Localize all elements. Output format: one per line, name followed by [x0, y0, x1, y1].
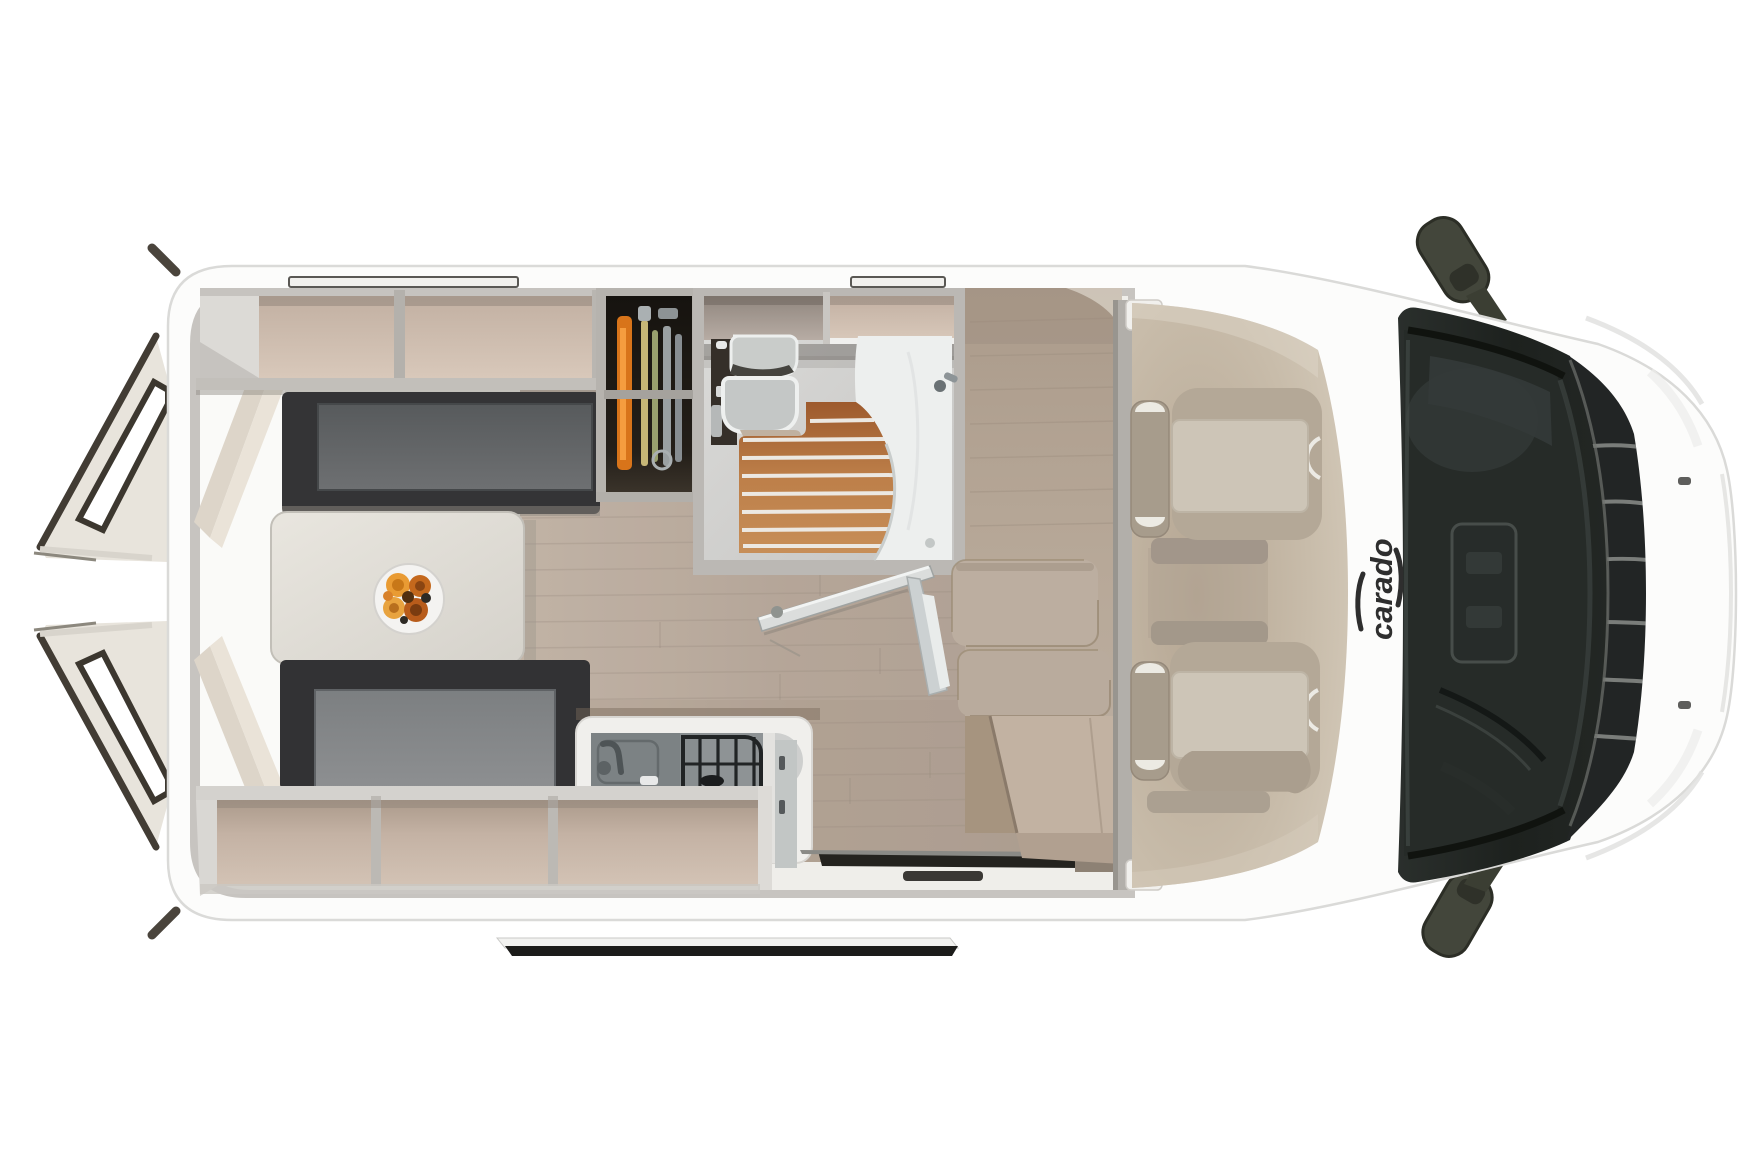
svg-text:carado: carado: [1364, 538, 1399, 640]
